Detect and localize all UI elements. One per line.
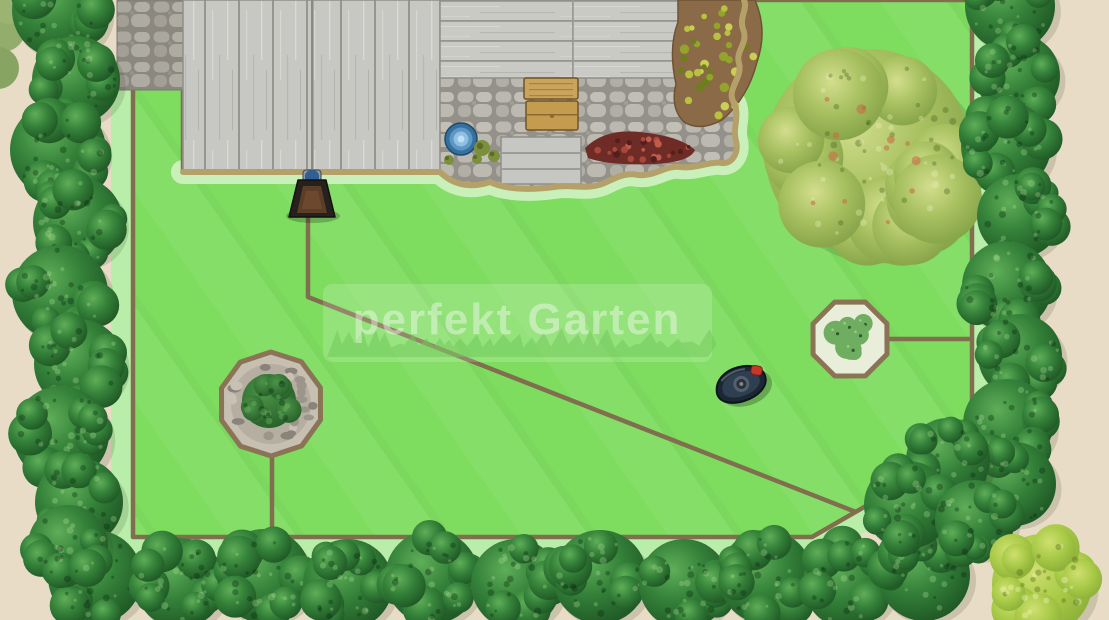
mower-bumper (750, 365, 762, 376)
watermark-text: perfekt Garten (353, 295, 682, 344)
garden-plan-scene: perfekt Garten (0, 0, 1109, 620)
scene-layers (117, 0, 988, 537)
watermark: perfekt Garten (323, 284, 716, 362)
flower-island-left (222, 352, 321, 456)
pond (445, 123, 477, 155)
terrace-steps (501, 137, 581, 184)
flower-island-right (813, 302, 887, 376)
stone-path (117, 0, 185, 90)
garden-plan-image: perfekt Garten (0, 0, 1109, 620)
wooden-crates (524, 78, 578, 130)
